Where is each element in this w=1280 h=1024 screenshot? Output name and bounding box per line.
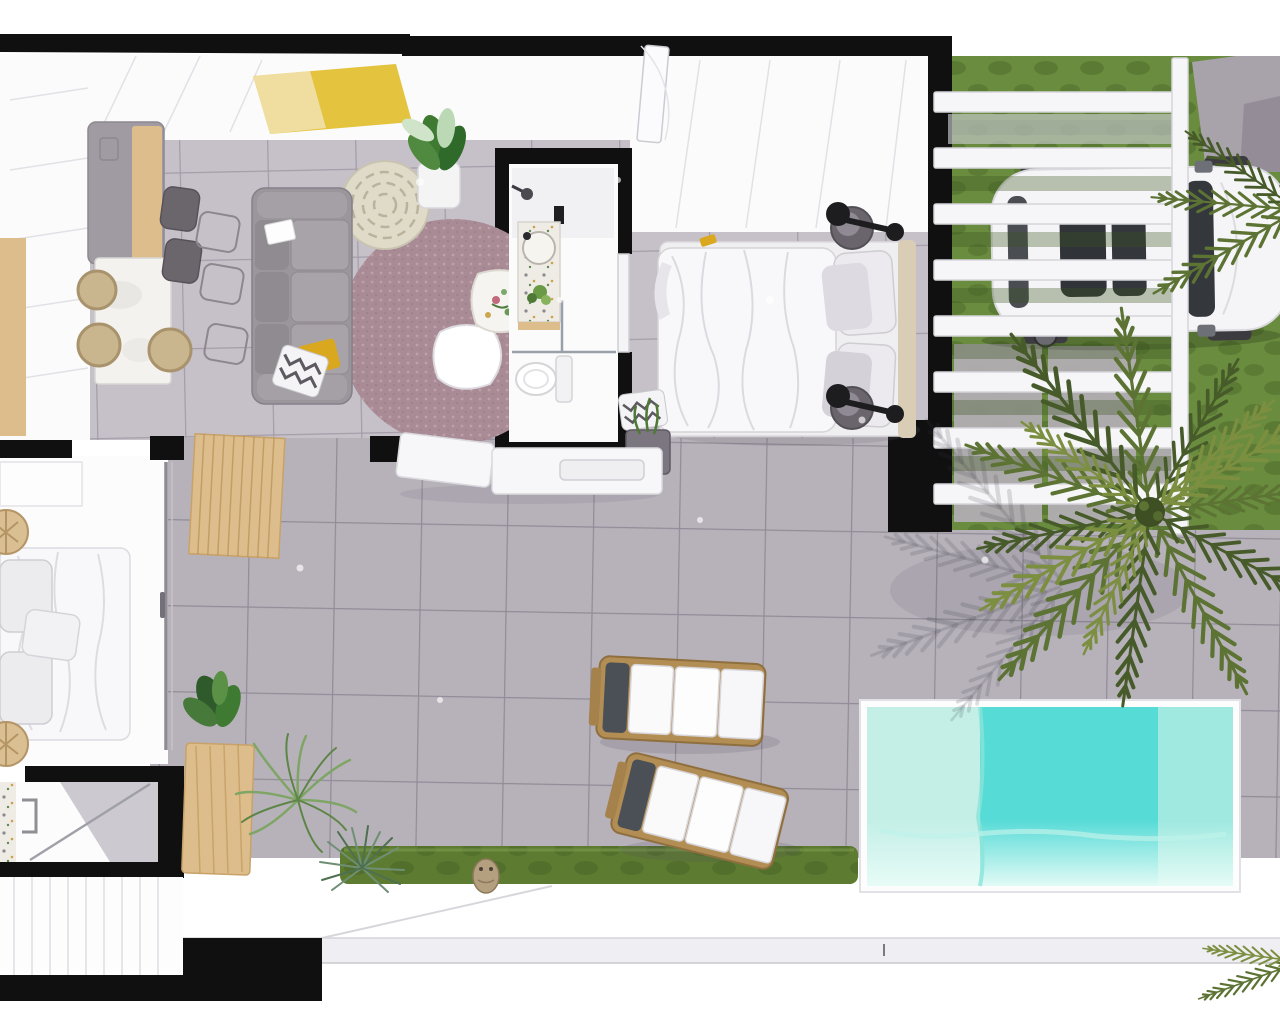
- wood-slat-partition: [189, 434, 285, 559]
- wall-leftbed-top: [0, 440, 72, 458]
- wall-bath2-top: [25, 766, 161, 782]
- shower-head: [521, 188, 533, 200]
- wall-bath2-bottom: [0, 862, 160, 877]
- door-stop: [798, 44, 830, 56]
- pillow-small: [21, 608, 81, 661]
- bathroom-wall-top: [495, 148, 632, 164]
- console-drawer: [560, 460, 644, 480]
- bathroom-second: [0, 782, 158, 862]
- bath2-terrazzo-wall: [0, 782, 16, 862]
- lamp-base: [886, 405, 904, 423]
- toilet-bowl: [516, 363, 556, 395]
- plant-pot: [418, 162, 460, 208]
- bedroom-main: [618, 202, 920, 474]
- door-handle: [160, 592, 165, 618]
- car-mirror: [1197, 325, 1215, 337]
- island-wood-top: [132, 126, 162, 262]
- owl-ornament: [473, 859, 499, 893]
- floor-plan-svg: [0, 0, 1280, 1024]
- coffee-table-white: [433, 325, 501, 389]
- floor-plan-render: [0, 0, 1280, 1024]
- pergola-glazing: [948, 114, 1174, 144]
- car-mirror: [1194, 161, 1212, 173]
- louver-fence: [0, 877, 183, 975]
- bathroom-main: [509, 164, 629, 442]
- pillow: [0, 652, 52, 724]
- pergola-slat: [934, 204, 1186, 224]
- pergola-slat: [934, 260, 1186, 280]
- pergola-slat: [934, 148, 1186, 168]
- wicker-chair: [149, 329, 191, 371]
- pergola-slat: [934, 92, 1186, 112]
- wall-stub-leftbed: [150, 436, 184, 460]
- wall-top-right: [402, 36, 952, 56]
- bar-stool: [161, 238, 202, 285]
- bar-stool: [159, 186, 200, 233]
- plunge-pool: [860, 700, 1240, 892]
- faucet: [523, 232, 531, 240]
- wicker-chair: [78, 324, 120, 366]
- pouf: [341, 161, 429, 249]
- wardrobe: [630, 54, 930, 232]
- tall-cabinet-wood: [0, 238, 26, 436]
- wall-top-left: [0, 34, 410, 54]
- sofa-armrest: [257, 192, 347, 218]
- pergola-slat: [934, 316, 1186, 336]
- lamp-base: [886, 223, 904, 241]
- shelf: [0, 462, 82, 506]
- bathroom-wall-right-a: [618, 148, 632, 254]
- duvet: [658, 248, 836, 432]
- wicker-chair: [78, 271, 116, 309]
- planter-zigzag-cushion: [618, 389, 669, 431]
- vanity-wood-base: [518, 322, 560, 330]
- bathroom-sliding-door: [618, 254, 629, 352]
- pillow-inner: [821, 262, 874, 332]
- wall-bottom-step: [182, 938, 322, 1001]
- toilet-tank: [556, 356, 572, 402]
- sun-lounger: [588, 655, 766, 746]
- wall-bath2-right: [158, 766, 184, 878]
- wood-sideboard: [182, 743, 254, 875]
- sofa: [252, 188, 352, 404]
- wall-bottom-left: [0, 975, 184, 1001]
